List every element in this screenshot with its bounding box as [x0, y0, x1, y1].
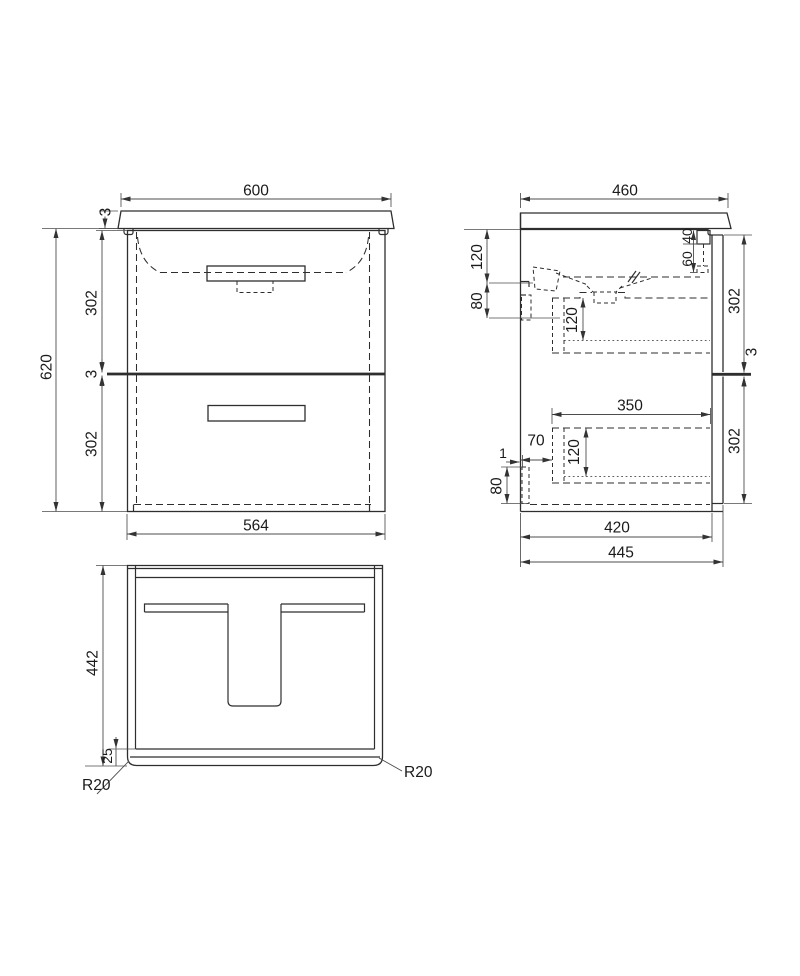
- svg-text:420: 420: [604, 520, 630, 537]
- side-lower-drawer-box: [522, 428, 710, 504]
- side-drawer-fronts: [712, 235, 751, 504]
- svg-text:564: 564: [243, 518, 269, 535]
- dim-front-upper-drawer: 302: [84, 231, 128, 373]
- plan-basin-cutout: [145, 604, 365, 706]
- svg-text:R20: R20: [404, 764, 433, 781]
- svg-text:120: 120: [469, 244, 486, 270]
- dim-side-depth-top: 460: [521, 183, 729, 209]
- front-view: 600 3 620 302 3 302: [39, 183, 395, 541]
- svg-text:600: 600: [243, 183, 269, 200]
- side-view: 460 120 80 40 60 302 3: [464, 183, 761, 568]
- dim-side-tap-below: 80: [469, 283, 560, 318]
- dim-plan-front-edge: 25: [99, 737, 135, 766]
- dim-side-mid-gap: 3: [744, 348, 761, 390]
- dim-front-width-body: 564: [127, 514, 385, 540]
- svg-text:302: 302: [84, 431, 101, 457]
- dim-side-back-offset: 70: [521, 433, 553, 461]
- dim-front-width-top: 600: [121, 183, 391, 208]
- svg-text:350: 350: [617, 398, 643, 415]
- front-cabinet-body: [107, 231, 385, 512]
- dim-side-back-gap: 1: [499, 445, 522, 467]
- svg-text:120: 120: [564, 307, 581, 333]
- basin-waste-outline: [237, 281, 273, 293]
- dim-side-upper-box-height: 120: [564, 298, 583, 341]
- dim-side-tap-above: 120: [464, 230, 533, 284]
- front-basin-outline: [138, 237, 369, 293]
- waste-pipe-outline: [522, 295, 532, 320]
- svg-text:302: 302: [84, 290, 101, 316]
- counter-clip-left: [124, 229, 133, 235]
- svg-text:3: 3: [744, 348, 761, 357]
- dim-side-depth-internal: 420: [521, 513, 713, 542]
- svg-text:70: 70: [527, 433, 545, 450]
- dim-side-bracket: 40 60: [679, 228, 698, 272]
- svg-text:40: 40: [679, 228, 695, 244]
- dim-side-lower-box-height: 120: [566, 428, 586, 477]
- svg-text:445: 445: [608, 545, 634, 562]
- svg-text:302: 302: [727, 288, 744, 314]
- dim-plan-depth: 442: [85, 566, 128, 767]
- lower-drawer-handle: [208, 406, 305, 422]
- svg-text:3: 3: [84, 370, 101, 379]
- svg-text:442: 442: [85, 650, 102, 676]
- dim-side-lower-front: 302: [724, 377, 752, 504]
- vanity-technical-drawing: 600 3 620 302 3 302: [0, 0, 800, 976]
- dim-side-back-panel-height: 80: [489, 467, 530, 504]
- tap-outline: [533, 267, 560, 291]
- upper-drawer-handle: [207, 266, 305, 281]
- dim-side-drawer-depth: 350: [552, 398, 711, 425]
- svg-text:120: 120: [566, 439, 583, 465]
- svg-text:80: 80: [469, 292, 486, 310]
- svg-text:25: 25: [99, 748, 115, 764]
- back-panel-outline: [522, 467, 529, 504]
- basin-drain-outline: [593, 292, 617, 303]
- dim-front-mid-gap: 3: [84, 359, 103, 389]
- side-countertop: [521, 213, 732, 235]
- side-tap-basin-outline: [521, 267, 701, 320]
- dim-front-counter-gap: 3: [98, 208, 119, 229]
- svg-text:302: 302: [727, 428, 744, 454]
- technical-drawing-page: 600 3 620 302 3 302: [0, 0, 800, 976]
- svg-text:R20: R20: [82, 777, 111, 794]
- plan-view: 442 25 R20 R20: [82, 566, 433, 795]
- svg-text:80: 80: [489, 477, 506, 495]
- svg-text:620: 620: [39, 354, 56, 380]
- svg-text:1: 1: [499, 445, 507, 461]
- plan-outline: [128, 566, 383, 766]
- dim-front-lower-drawer: 302: [84, 376, 103, 512]
- callout-radius-right: R20: [379, 758, 433, 781]
- svg-text:3: 3: [98, 208, 115, 217]
- counter-clip-right: [379, 229, 388, 235]
- drain-channel: [228, 604, 281, 706]
- svg-text:60: 60: [679, 251, 695, 267]
- svg-text:460: 460: [612, 183, 638, 200]
